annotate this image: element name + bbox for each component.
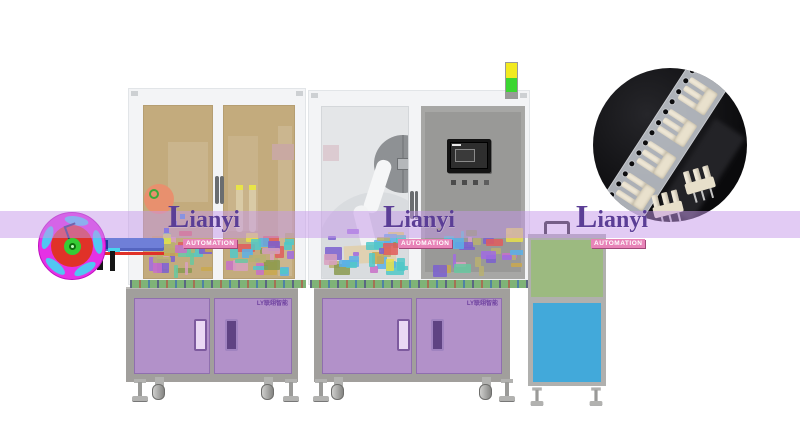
machinery-block — [479, 266, 484, 276]
hmi-screen-text — [452, 144, 461, 146]
leveling-foot — [499, 379, 515, 403]
brand-name: Lianyi — [168, 204, 278, 232]
brand-badge: AUTOMATION — [398, 239, 452, 248]
side-machine — [528, 234, 606, 386]
caster-wheel — [329, 377, 347, 401]
machinery-block — [349, 256, 359, 263]
cabinet-door-handle[interactable] — [431, 319, 444, 351]
rose-panel — [272, 144, 294, 160]
leveling-foot — [313, 379, 329, 403]
connector-product-photo — [593, 68, 747, 222]
left-enclosure-window-right — [223, 105, 295, 279]
machine-render: LY联翊智能 LY联翊智能 — [0, 0, 800, 438]
frame-gusset — [131, 91, 138, 96]
taped-connector — [677, 77, 718, 116]
worktable-edge — [130, 280, 306, 288]
machinery-block — [153, 263, 162, 273]
cabinet-left: LY联翊智能 — [126, 287, 298, 382]
cabinet-door-handle[interactable] — [397, 319, 410, 351]
cabinet-door-handle[interactable] — [225, 319, 238, 351]
frame-gusset — [296, 91, 303, 96]
reel-hub-dot — [71, 245, 74, 248]
machinery-block — [511, 263, 522, 267]
brand-door-label: LY联翊智能 — [467, 301, 498, 308]
machinery-block — [369, 253, 374, 266]
brand-door-label: LY联翊智能 — [257, 301, 288, 308]
tube-cap — [249, 185, 256, 190]
caster-wheel — [259, 377, 277, 401]
cabinet-door-handle[interactable] — [194, 319, 207, 351]
worktable-parts — [130, 280, 306, 288]
reel-disk-hub — [397, 158, 409, 170]
leveling-foot — [590, 387, 603, 406]
machinery-block — [249, 255, 266, 262]
machinery-block — [280, 268, 288, 275]
hmi-window — [455, 149, 475, 162]
signal-green-segment — [506, 78, 517, 92]
cabinet-door[interactable]: LY联翊智能 — [416, 298, 502, 374]
machinery-block — [287, 251, 295, 259]
right-enclosure-window — [321, 106, 409, 279]
machinery-block — [201, 267, 213, 271]
machinery-block — [481, 251, 496, 259]
machinery-block — [235, 259, 249, 263]
frame-gusset — [311, 93, 318, 98]
pink-panel — [323, 145, 339, 161]
frame-gusset — [520, 93, 527, 98]
machinery-block — [185, 262, 188, 275]
signal-yellow-segment — [506, 63, 517, 78]
taped-connector — [636, 140, 677, 179]
side-machine-blue-panel — [533, 303, 601, 382]
hmi-button[interactable] — [462, 180, 467, 185]
machinery-block — [398, 266, 409, 269]
caster-wheel — [150, 377, 168, 401]
machinery-block — [370, 266, 379, 273]
brand-badge: AUTOMATION — [591, 239, 645, 248]
machinery-block — [324, 254, 337, 265]
watermark-logo: Lianyi AUTOMATION — [576, 204, 686, 250]
hmi-button[interactable] — [484, 180, 489, 185]
hmi-button[interactable] — [451, 180, 456, 185]
machinery-block — [510, 250, 523, 254]
watermark-logo: Lianyi AUTOMATION — [168, 204, 278, 250]
signal-base — [506, 92, 517, 98]
hmi-button[interactable] — [473, 180, 478, 185]
cabinet-door[interactable] — [322, 298, 412, 374]
caster-wheel — [477, 377, 495, 401]
worktable-edge — [310, 280, 528, 288]
brand-badge: AUTOMATION — [183, 239, 237, 248]
tube-cap — [236, 185, 243, 190]
cabinet-right: LY联翊智能 — [314, 287, 510, 382]
brand-name: Lianyi — [576, 204, 686, 232]
leveling-foot — [132, 379, 148, 403]
machinery-block — [339, 260, 350, 266]
control-panel — [421, 106, 525, 279]
cabinet-door[interactable] — [134, 298, 210, 374]
machinery-block — [454, 264, 471, 273]
leveling-foot — [283, 379, 299, 403]
sliding-door-handle — [215, 176, 219, 204]
brand-name: Lianyi — [383, 204, 493, 232]
worktable-parts — [310, 280, 528, 288]
machinery-block — [264, 260, 280, 271]
machinery-block — [174, 265, 178, 278]
signal-tower-light — [505, 62, 518, 99]
leveling-foot — [531, 387, 544, 406]
green-ring — [149, 189, 159, 199]
machinery-block — [386, 259, 394, 272]
support-post — [110, 251, 115, 271]
right-enclosure — [308, 90, 530, 285]
left-enclosure — [128, 88, 306, 285]
machinery-block — [502, 255, 512, 259]
window-reflection — [168, 142, 208, 202]
hmi-monitor[interactable] — [447, 139, 491, 173]
taped-connector — [657, 109, 698, 148]
sliding-door-handle — [220, 176, 224, 204]
watermark-logo: Lianyi AUTOMATION — [383, 204, 493, 250]
machinery-block — [433, 265, 448, 277]
machinery-block — [190, 253, 194, 266]
cabinet-door[interactable]: LY联翊智能 — [214, 298, 292, 374]
